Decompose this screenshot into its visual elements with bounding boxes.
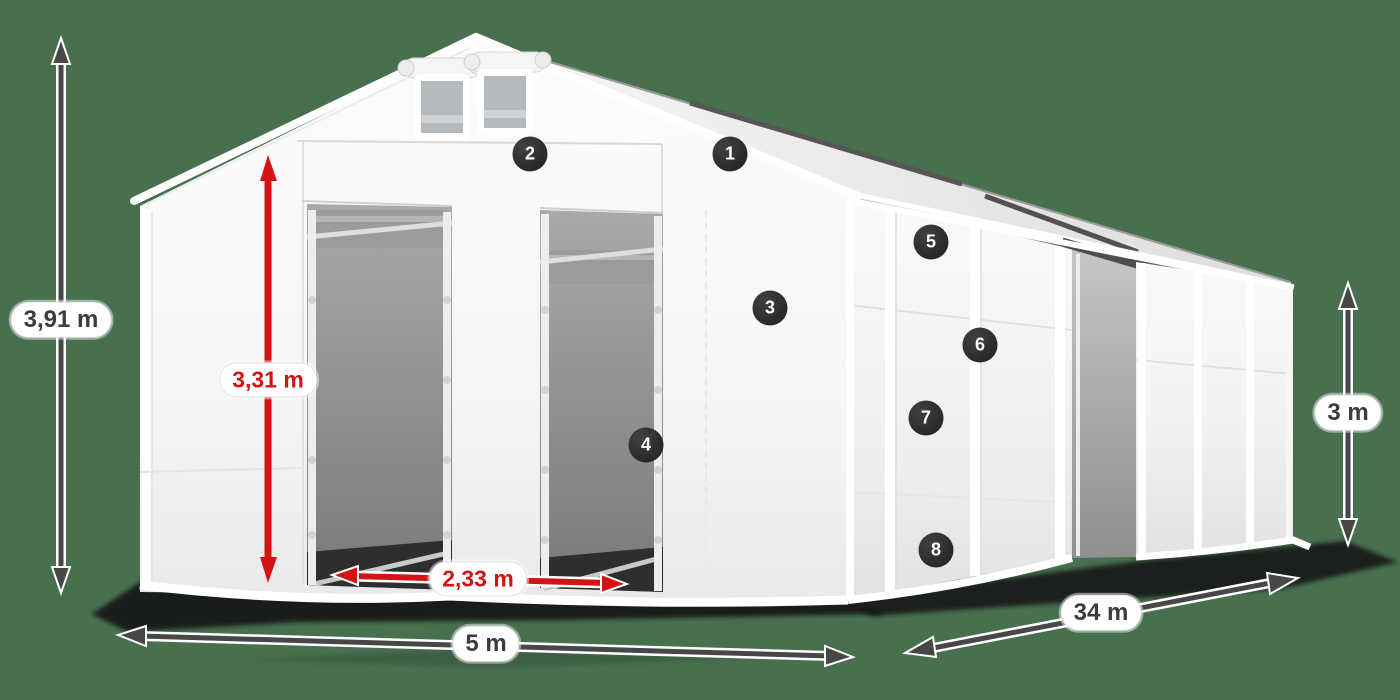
door-opening-right [540, 210, 663, 592]
dimension-label-overall-height: 3,91 m [11, 302, 112, 338]
side-door-opening [1062, 242, 1147, 558]
dimension-label-entrance-width: 2,33 m [429, 561, 527, 596]
feature-marker-5[interactable]: 5 [914, 225, 949, 260]
dimension-label-side-height: 3 m [1314, 395, 1381, 431]
product-diagram: 3,91 m 3,31 m 2,33 m 5 m 34 m 3 m 1 2 3 … [0, 0, 1400, 700]
feature-marker-3[interactable]: 3 [753, 291, 788, 326]
feature-marker-8[interactable]: 8 [919, 533, 954, 568]
dimension-label-entrance-height: 3,31 m [219, 362, 317, 397]
tent-illustration [0, 0, 1400, 700]
tent-side-wall [848, 197, 1310, 600]
feature-marker-4[interactable]: 4 [629, 428, 664, 463]
door-opening-left [307, 204, 452, 590]
dimension-label-tent-length: 34 m [1061, 595, 1142, 631]
feature-marker-2[interactable]: 2 [513, 137, 548, 172]
feature-marker-7[interactable]: 7 [909, 401, 944, 436]
feature-marker-1[interactable]: 1 [713, 137, 748, 172]
feature-marker-6[interactable]: 6 [963, 328, 998, 363]
dimension-label-tent-width: 5 m [452, 626, 519, 662]
